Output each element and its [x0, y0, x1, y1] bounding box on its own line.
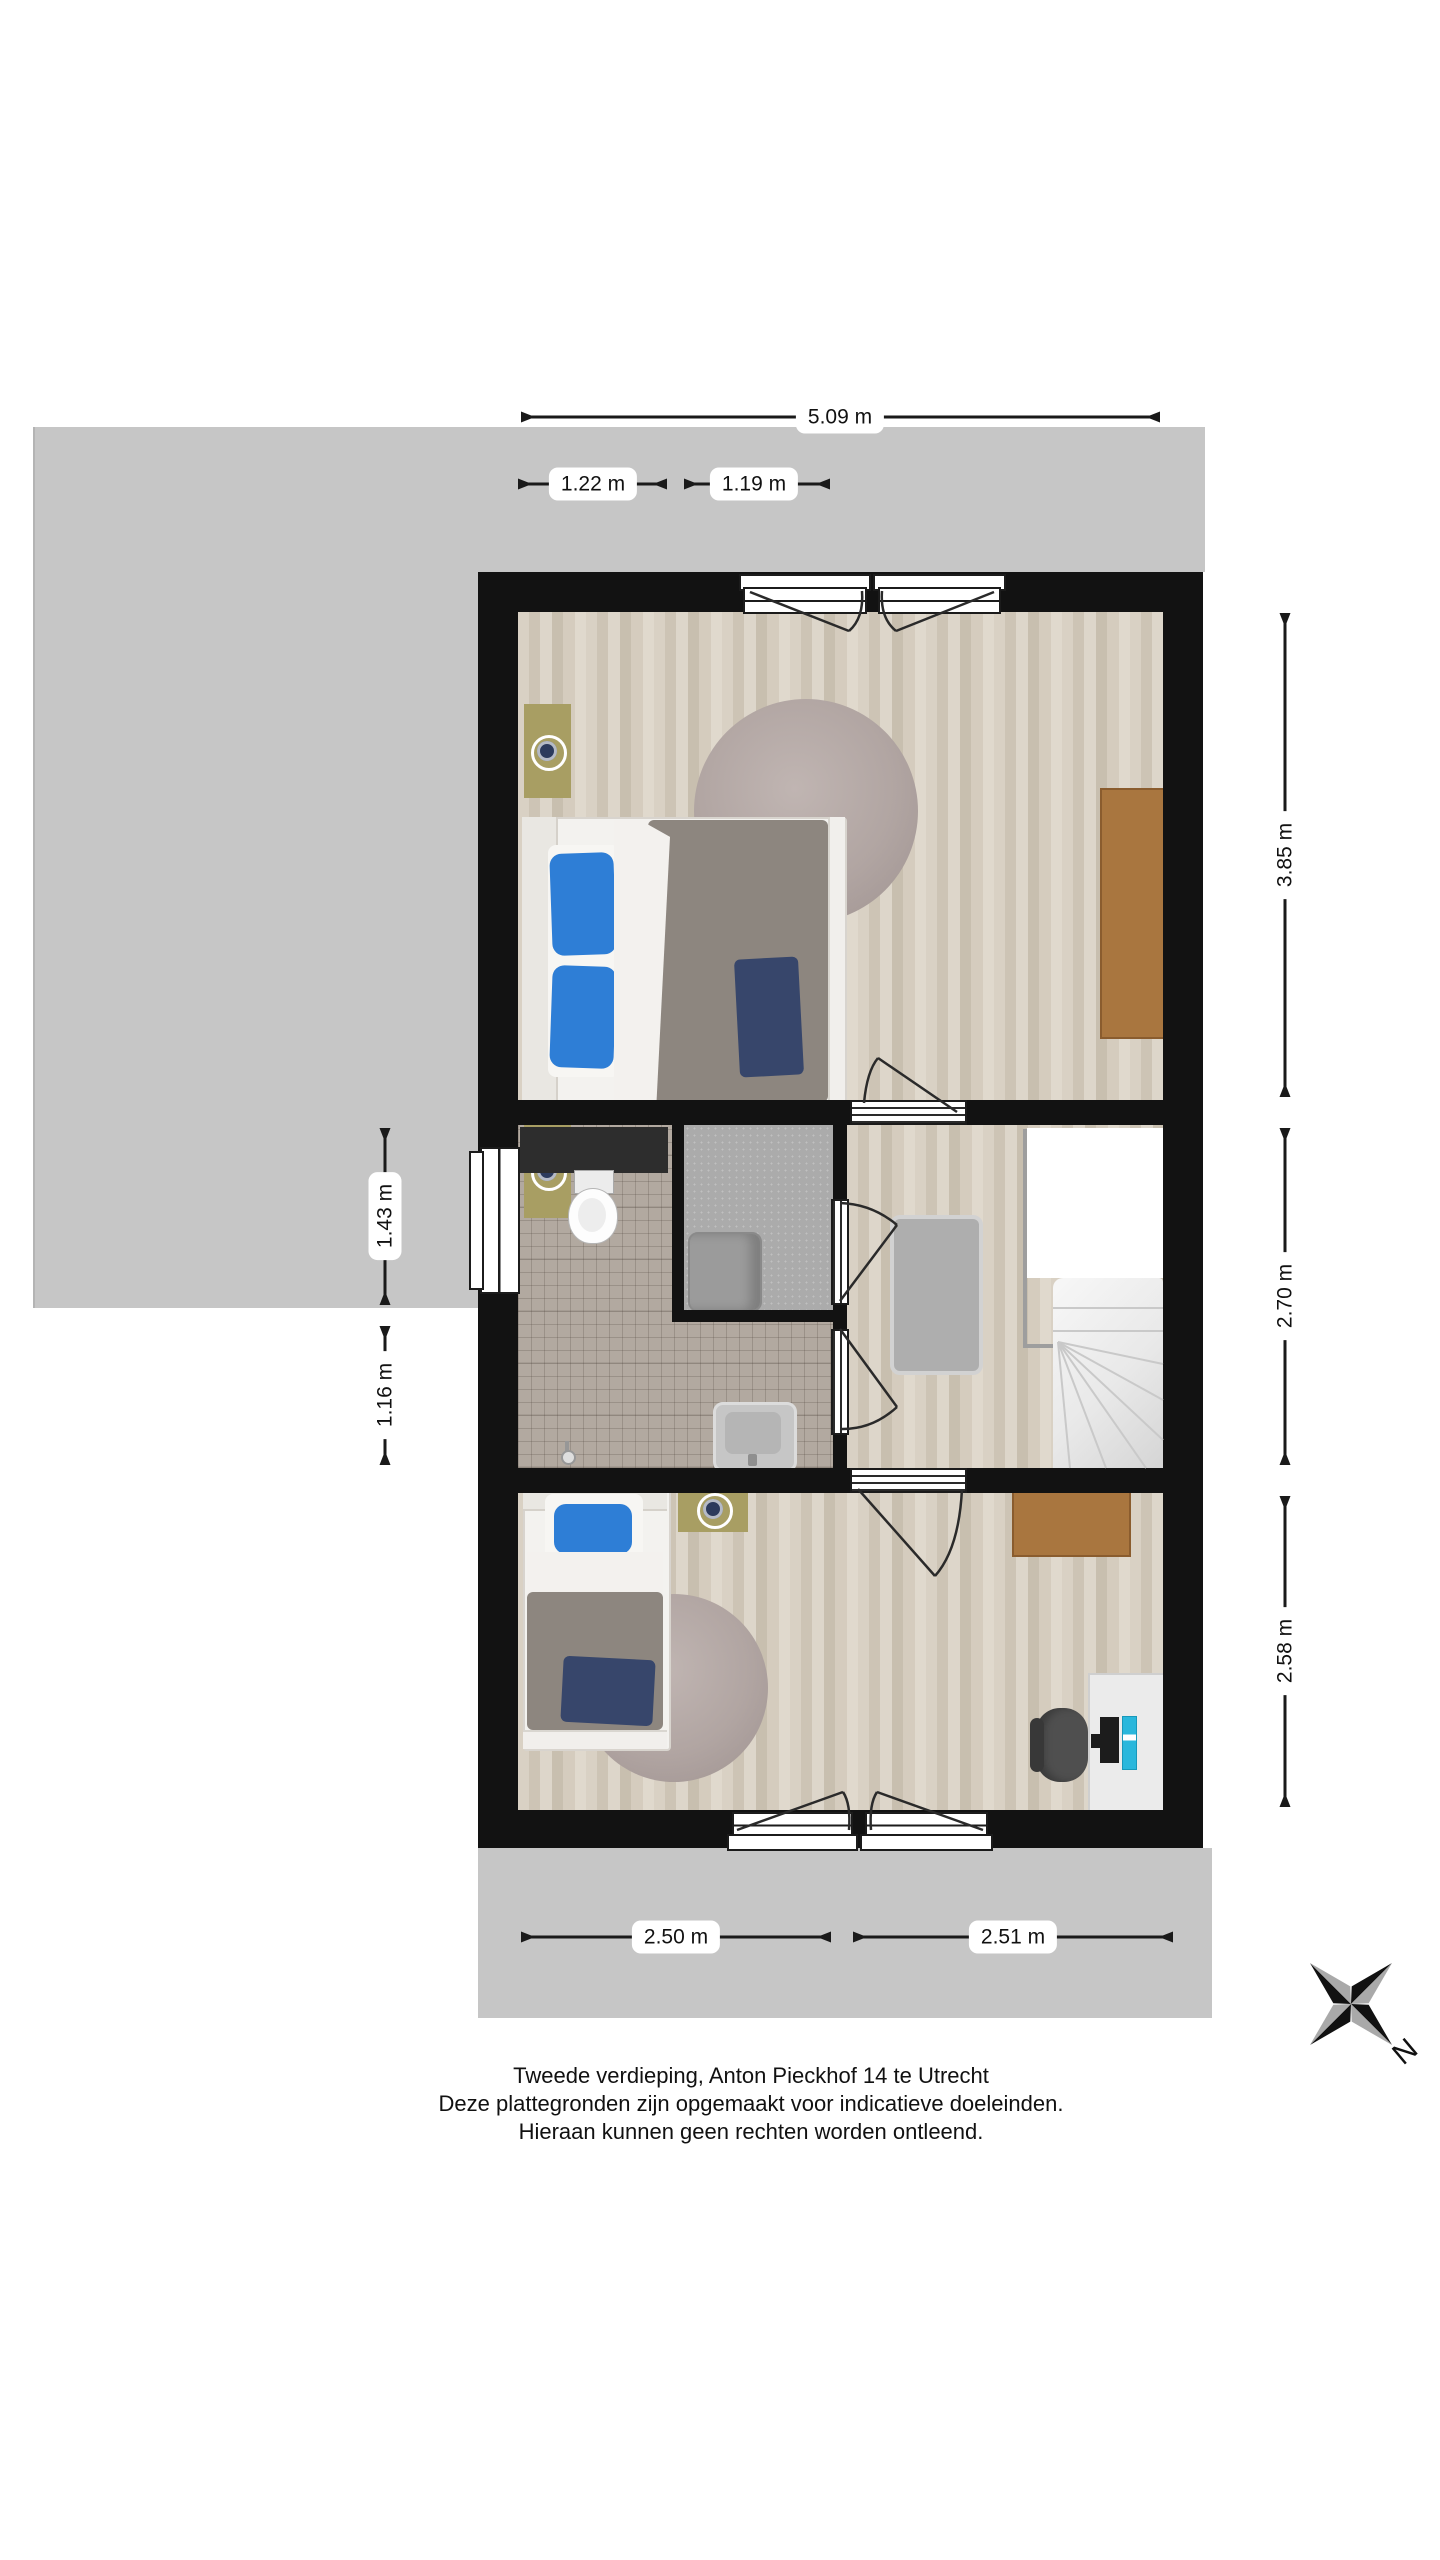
- floorplan-page: { "floorplan": { "dimensions": { "width_…: [0, 0, 1440, 2560]
- dim-bottom-left: 2.50 m: [632, 1921, 720, 1954]
- caption-line-1: Tweede verdieping, Anton Pieckhof 14 te …: [120, 2062, 1382, 2090]
- compass-blade-n: [1343, 1955, 1401, 2013]
- dim-width-total: 5.09 m: [796, 401, 884, 434]
- caption-line-3: Hieraan kunnen geen rechten worden ontle…: [120, 2118, 1382, 2146]
- dim-bottom-right: 2.51 m: [969, 1921, 1057, 1954]
- compass-rose-icon: N: [1276, 1929, 1426, 2079]
- dim-top-left: 1.22 m: [549, 468, 637, 501]
- caption-block: Tweede verdieping, Anton Pieckhof 14 te …: [120, 2062, 1382, 2146]
- stair-treads-icon: [1053, 1308, 1163, 1468]
- stair-railing: [1025, 1129, 1053, 1346]
- dim-left-lower: 1.16 m: [369, 1351, 402, 1439]
- plan-annotations: [0, 0, 1440, 2560]
- compass-north-label: N: [1386, 2032, 1424, 2071]
- caption-line-2: Deze plattegronden zijn opgemaakt voor i…: [120, 2090, 1382, 2118]
- door-swing-icons: [840, 1058, 962, 1576]
- dimension-lines: [385, 417, 1285, 1937]
- dim-right-bedroom2: 2.58 m: [1269, 1607, 1302, 1695]
- dim-right-bedroom1: 3.85 m: [1269, 811, 1302, 899]
- dim-right-landing: 2.70 m: [1269, 1252, 1302, 1340]
- window-casement-icons: [737, 591, 994, 1830]
- dim-left-upper: 1.43 m: [369, 1172, 402, 1260]
- dim-top-right: 1.19 m: [710, 468, 798, 501]
